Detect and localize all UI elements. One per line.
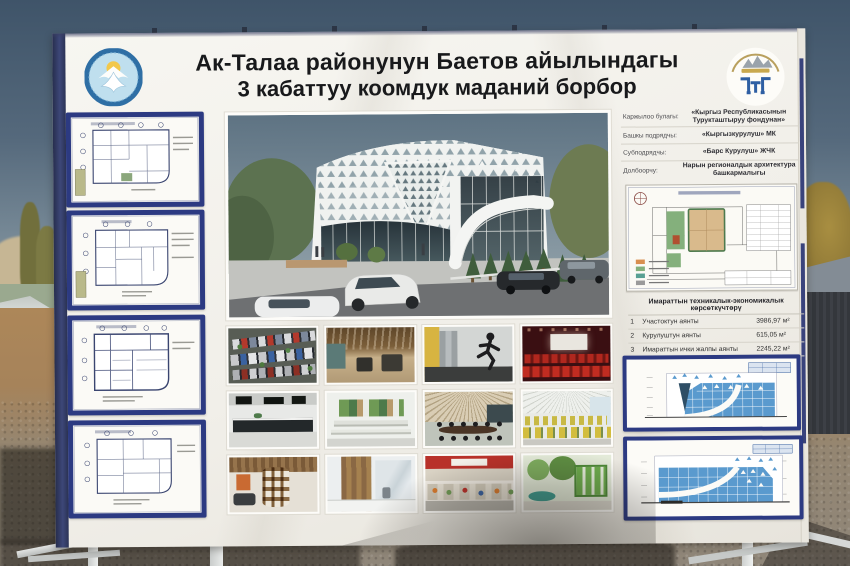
floor-plan-3-drawing <box>72 320 201 411</box>
runner-silhouette <box>470 331 506 371</box>
photo-cinema-hall <box>520 324 612 383</box>
project-info-row: Долбоорчу: Нарын регионалдык архитектура… <box>621 161 799 181</box>
photo-conference-room <box>423 389 515 448</box>
indicator-value: 2245,22 м² <box>756 345 802 352</box>
chair-rows <box>523 426 611 438</box>
tree-mural <box>550 456 577 480</box>
photo-cafeteria-counter <box>227 390 319 449</box>
indicator-name: Курулуштун аянты <box>642 332 756 340</box>
round-bench <box>529 492 555 502</box>
project-info-row: Каржылоо булагы: «Кыргыз Республикасынын… <box>621 107 799 128</box>
kyrgyz-emblem-icon <box>84 48 142 106</box>
photo-assembly-hall <box>521 388 613 447</box>
indicator-num: 1 <box>630 319 642 326</box>
organization-emblem-icon <box>724 46 786 108</box>
indicators-title: Имараттын техникалык-экономикалык көрсөт… <box>628 294 804 315</box>
site-plan-sheet <box>625 183 798 291</box>
car-row <box>232 330 315 349</box>
indicator-value: 3986,97 м² <box>756 317 802 324</box>
shadow-behind-billboard-left <box>0 448 62 544</box>
site-plan-drawing <box>626 184 797 290</box>
playground-structure <box>574 465 608 497</box>
desks <box>331 429 412 435</box>
indicator-num: 2 <box>630 333 642 340</box>
indicators-table: Имараттын техникалык-экономикалык көрсөт… <box>628 294 804 351</box>
floor-plan-sheet-2 <box>66 210 205 311</box>
floor-plan-4-drawing <box>73 425 202 514</box>
round-bookshelf <box>263 467 290 507</box>
project-info-row: Башкы подрядчы: «Кыргызкурулуш» МК <box>621 127 799 145</box>
sofa <box>233 494 256 506</box>
interior-photo-grid <box>226 324 613 515</box>
elevation-sheet-2 <box>623 435 804 520</box>
photo-library <box>227 455 319 514</box>
dark-wall <box>486 404 513 423</box>
floor-plan-sheet-1 <box>66 112 205 208</box>
project-info-row: Субподрядчы: «Барс Курулуш» ЖЧК <box>621 144 799 162</box>
chair <box>382 487 391 498</box>
window-wall <box>326 344 346 369</box>
building-render-photo <box>225 110 612 321</box>
photo-office-green <box>325 390 417 449</box>
photo-wood-corridor <box>325 454 417 513</box>
project-info-table: Каржылоо булагы: «Кыргыз Республикасынын… <box>621 107 800 181</box>
billboard: Ак-Талаа районунун Баетов айылындагы 3 к… <box>52 28 809 547</box>
floor <box>523 501 611 510</box>
menu-board <box>292 396 306 404</box>
photo-canteen-red-ceiling <box>423 454 515 513</box>
floor <box>425 501 513 511</box>
floor-plan-sheet-3 <box>67 315 206 416</box>
back-wall <box>425 469 513 482</box>
tables <box>427 483 512 500</box>
info-label: Субподрядчы: <box>623 149 681 157</box>
elevation-sheet-1 <box>622 354 801 431</box>
gym-equipment <box>356 357 372 371</box>
info-label: Каржылоо булагы: <box>623 114 681 122</box>
poster-title-line2: 3 кабаттуу коомдук маданий борбор <box>165 73 710 103</box>
orange-shelf <box>236 474 250 490</box>
indicator-name: Имараттын ички жалпы аянты <box>642 346 756 354</box>
floor-plan-sheet-4 <box>68 420 207 519</box>
photo-parking-aerial <box>226 326 318 385</box>
poster-title: Ак-Талаа районунун Баетов айылындагы 3 к… <box>164 46 709 103</box>
info-value: «Барс Курулуш» ЖЧК <box>681 148 797 157</box>
outdoor-scene: Ак-Талаа районунун Баетов айылындагы 3 к… <box>0 0 850 566</box>
indicator-row: 2 Курулуштун аянты 615,05 м² <box>628 328 804 343</box>
menu-board <box>236 396 252 404</box>
floor-plan-2-drawing <box>71 215 200 306</box>
elevation-1-drawing <box>627 358 797 427</box>
floor <box>523 439 611 446</box>
floor <box>229 432 317 448</box>
chairs <box>437 422 442 427</box>
conference-table <box>439 425 497 434</box>
counter <box>232 418 313 433</box>
gym-equipment <box>381 355 402 372</box>
chair-rows <box>525 416 608 425</box>
building-render-image <box>228 113 609 318</box>
seat-rows <box>524 354 609 363</box>
info-value: «Кыргыз Республикасынын Турукташтыруу фо… <box>681 108 797 125</box>
lockers <box>439 331 457 369</box>
photo-runner-corridor <box>422 324 514 383</box>
tree-mural <box>527 459 550 481</box>
green-cabinets <box>339 399 404 416</box>
info-label: Башкы подрядчы: <box>623 132 681 140</box>
photo-gym-interior <box>324 325 416 384</box>
menu-board <box>264 397 283 404</box>
info-value: Нарын регионалдык архитектура башкармалы… <box>681 162 797 179</box>
chairs <box>439 436 444 441</box>
ceiling-panel <box>452 458 487 466</box>
info-label: Долбоорчу: <box>623 167 681 175</box>
car-row <box>232 364 315 380</box>
cinema-screen <box>550 334 587 351</box>
desks <box>334 420 408 426</box>
elevation-2-drawing <box>627 439 800 516</box>
indicator-value: 615,05 м² <box>756 331 802 338</box>
plants <box>253 414 262 418</box>
floor-plan-1-drawing <box>71 117 200 203</box>
car-row <box>230 347 315 366</box>
seat-rows <box>523 366 611 378</box>
info-value: «Кыргызкурулуш» МК <box>681 131 797 140</box>
indicator-num: 3 <box>630 347 642 354</box>
ceiling-lights <box>528 328 605 332</box>
floor <box>327 438 415 447</box>
photo-kids-playroom <box>521 453 613 512</box>
floor <box>327 499 415 512</box>
indicator-row: 1 Участоктун аянты 3986,97 м² <box>628 314 804 329</box>
indicator-name: Участоктун аянты <box>642 318 756 326</box>
glass-wall <box>375 460 412 500</box>
trees-dots <box>237 345 242 350</box>
poster-title-line1: Ак-Талаа районунун Баетов айылындагы <box>164 46 709 77</box>
